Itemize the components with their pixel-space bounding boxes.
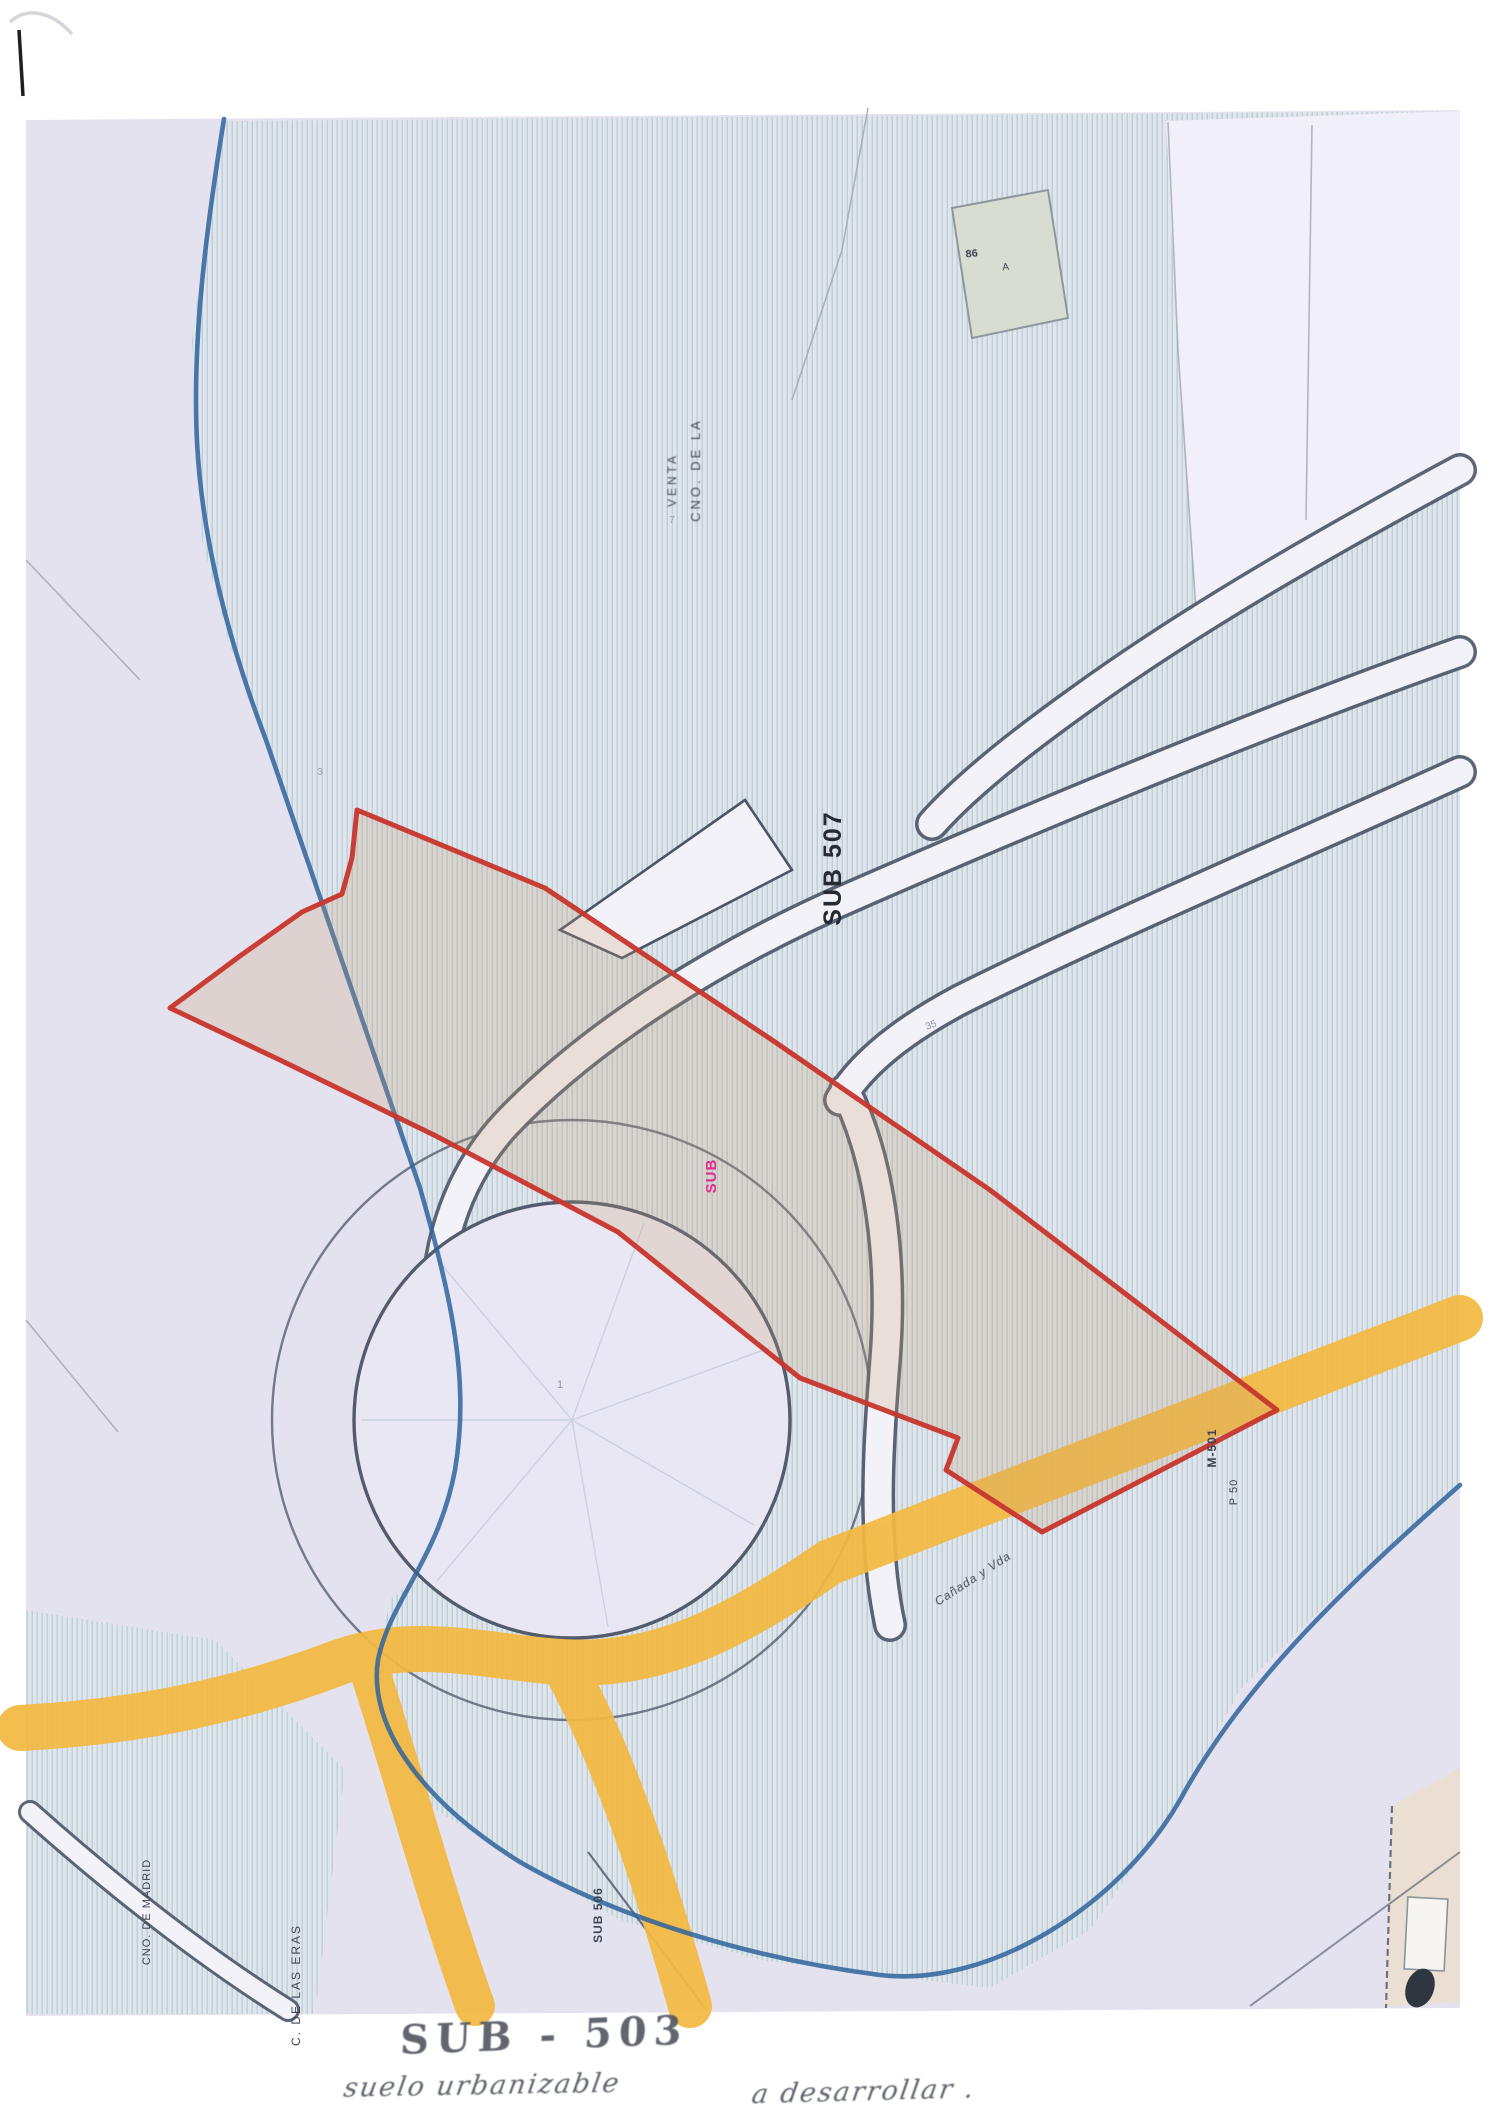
- scanned-plan-page: CNO. DE LAVENTASUB 507SUBCañada y VdaM-5…: [0, 0, 1500, 2121]
- map-label-road-label-bottomleft: CNO. DE MADRID: [141, 1859, 153, 1965]
- scan-mark-tick: [19, 30, 23, 96]
- map-label-sector-code-vertical: SUB 507: [819, 810, 847, 925]
- handwritten-note-right: a desarrollar .: [750, 2073, 978, 2110]
- map-label-road-label-bottomleft-2: C. DE LAS ERAS: [289, 1924, 303, 2046]
- handwritten-note-left: suelo urbanizable: [342, 2068, 624, 2104]
- map-label-parcel-number-3: 3: [317, 767, 323, 778]
- map-label-sector-label-bottom: SUB 506: [591, 1887, 605, 1943]
- map-label-road-label-top-2: VENTA: [665, 453, 679, 507]
- map-label-parcel-number-7: 7: [669, 515, 675, 526]
- map-label-parcel-number-1: 1: [557, 1379, 563, 1391]
- zoning-map: CNO. DE LAVENTASUB 507SUBCañada y VdaM-5…: [0, 0, 1500, 2121]
- map-label-building-label-1: 86: [965, 247, 978, 260]
- building-footprint: [952, 190, 1068, 338]
- map-label-road-label-top: CNO. DE LA: [688, 418, 703, 522]
- map-label-road-label-m501-2: P 50: [1228, 1479, 1240, 1505]
- map-label-sector-code-magenta: SUB: [703, 1159, 720, 1194]
- map-label-road-label-m501: M-501: [1205, 1428, 1219, 1467]
- building-footprint-small: [1404, 1897, 1448, 1971]
